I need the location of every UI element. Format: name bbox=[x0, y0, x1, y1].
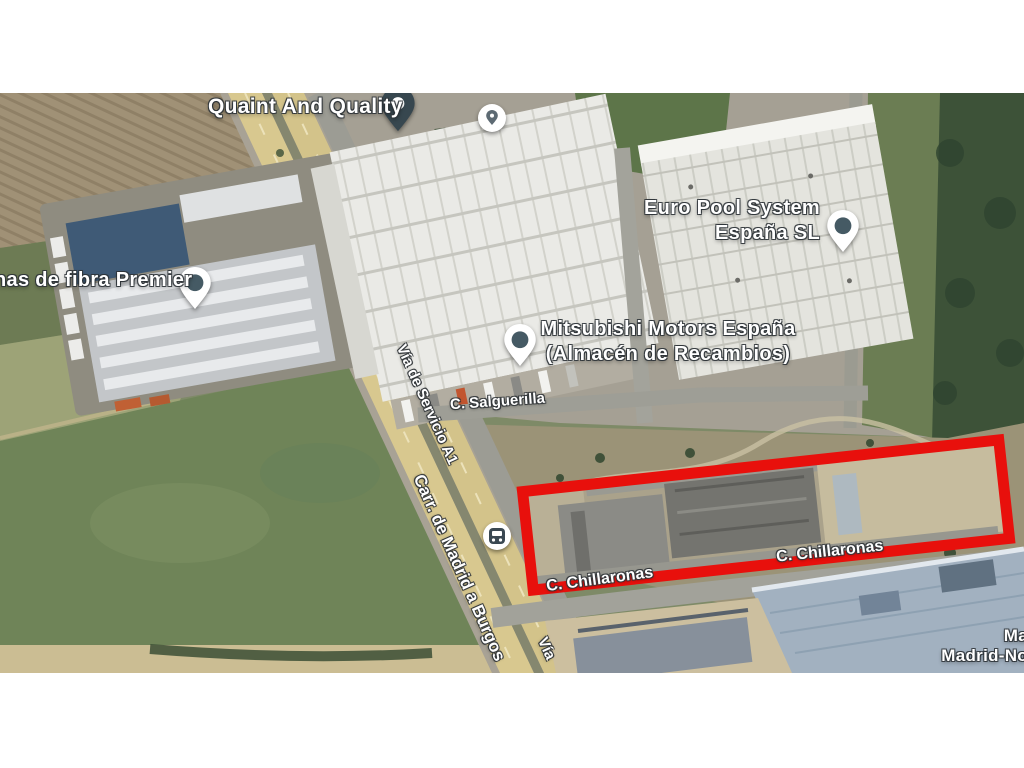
poi-label-quaint-and-quality[interactable]: Quaint And Quality bbox=[208, 95, 403, 119]
satellite-imagery bbox=[0, 93, 1024, 673]
bus-stop-marker[interactable] bbox=[482, 521, 512, 551]
poi-label-line: (Almacén de Recambios) bbox=[508, 342, 828, 367]
poi-label-mitsubishi[interactable]: Mitsubishi Motors España (Almacén de Rec… bbox=[508, 317, 828, 367]
map-pin-icon bbox=[825, 208, 861, 254]
poi-badge-icon bbox=[477, 103, 507, 133]
bus-stop-icon bbox=[482, 521, 512, 551]
top-margin bbox=[0, 0, 1024, 93]
screenshot-root: Quaint And Quality nas de fibra Premier … bbox=[0, 0, 1024, 768]
europool-pin[interactable] bbox=[825, 208, 861, 254]
quaint-poi-badge[interactable] bbox=[477, 103, 507, 133]
poi-label-euro-pool[interactable]: Euro Pool System España SL bbox=[644, 196, 820, 246]
poi-label-fibra-premier[interactable]: nas de fibra Premier bbox=[0, 269, 192, 292]
poi-label-line: Mitsubishi Motors España bbox=[508, 317, 828, 342]
poi-label-line: España SL bbox=[644, 221, 820, 246]
satellite-map-viewport[interactable]: Quaint And Quality nas de fibra Premier … bbox=[0, 93, 1024, 673]
poi-label-line: Euro Pool System bbox=[644, 196, 820, 221]
poi-label-line: Ma bbox=[941, 626, 1024, 646]
poi-label-line: Madrid-No bbox=[941, 646, 1024, 666]
bottom-margin bbox=[0, 673, 1024, 768]
poi-label-madrid-norte[interactable]: Ma Madrid-No bbox=[941, 626, 1024, 666]
